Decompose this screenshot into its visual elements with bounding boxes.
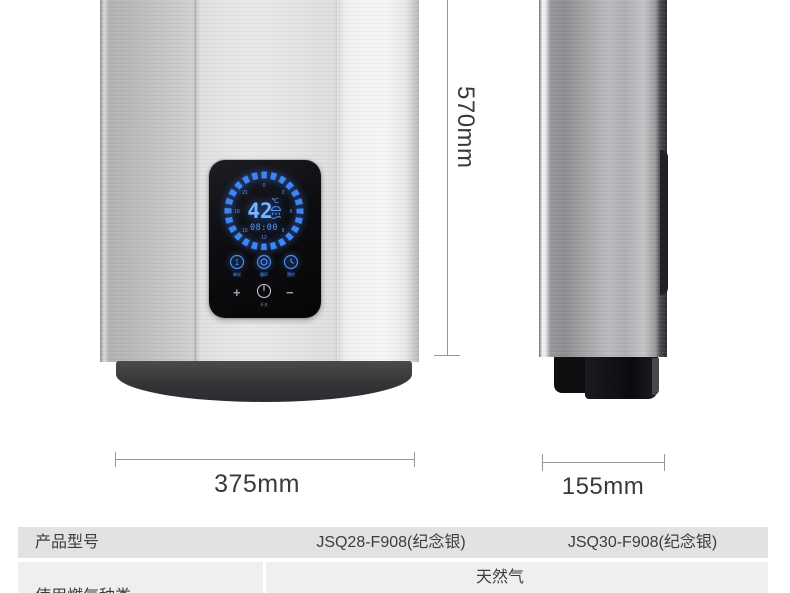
front-panel-seam-left bbox=[195, 0, 196, 362]
width-dimension-label: 375mm bbox=[177, 470, 337, 499]
height-dimension-line bbox=[447, 0, 448, 356]
power-icon bbox=[254, 281, 274, 301]
spec-column-divider bbox=[263, 562, 266, 593]
heater-control-panel: 0 3 6 9 12 15 18 21 42 ℃ 08:00 1 bbox=[209, 160, 321, 318]
spec-label-model: 产品型号 bbox=[35, 527, 99, 558]
heater-side-base bbox=[585, 357, 658, 399]
depth-dimension-line bbox=[542, 462, 665, 463]
svg-text:1: 1 bbox=[235, 258, 240, 267]
dial-num-21: 21 bbox=[242, 190, 248, 196]
single-use-button: 1 bbox=[229, 254, 245, 270]
heater-side-edge-bulge bbox=[660, 150, 668, 295]
spec-value-model-left: JSQ28-F908(纪念银) bbox=[265, 527, 517, 558]
dial-num-9: 9 bbox=[282, 228, 285, 234]
timer-label: 预约 bbox=[279, 272, 303, 278]
product-dimension-figure: 0 3 6 9 12 15 18 21 42 ℃ 08:00 1 bbox=[0, 0, 790, 593]
depth-dimension-label: 155mm bbox=[523, 473, 683, 501]
dial-num-6: 6 bbox=[290, 209, 293, 215]
temperature-readout: 42 bbox=[247, 199, 272, 223]
heater-side-base-trim bbox=[652, 358, 659, 395]
front-panel-seam-right bbox=[336, 0, 338, 362]
dial-num-18: 18 bbox=[234, 209, 240, 215]
cycle-label: 循环 bbox=[252, 272, 276, 278]
temp-down-button: − bbox=[286, 285, 294, 300]
width-dimension-tick-right bbox=[414, 452, 415, 467]
spec-label-gas-type: 使用燃气种类 bbox=[35, 581, 131, 593]
heater-side-base-left bbox=[554, 357, 586, 393]
spec-row-gas-type: 使用燃气种类 天然气 bbox=[18, 562, 768, 593]
single-use-icon: 1 bbox=[229, 254, 245, 270]
spec-row-model: 产品型号 JSQ28-F908(纪念银) JSQ30-F908(纪念银) bbox=[18, 527, 768, 558]
dial-num-0: 0 bbox=[263, 183, 266, 189]
width-dimension-tick-left bbox=[115, 452, 116, 467]
brushed-metal-texture-side bbox=[539, 0, 667, 357]
dial-num-3: 3 bbox=[282, 190, 285, 196]
dial-num-12: 12 bbox=[261, 235, 267, 241]
spec-value-gas-type: 天然气 bbox=[265, 562, 735, 593]
power-button-label: 开关 bbox=[252, 302, 276, 308]
width-dimension-line bbox=[115, 459, 415, 460]
height-dimension-label: 570mm bbox=[451, 86, 479, 169]
temperature-unit: ℃ bbox=[271, 198, 279, 205]
clock-readout: 08:00 bbox=[250, 223, 278, 233]
spec-value-model-right: JSQ30-F908(纪念银) bbox=[517, 527, 768, 558]
temp-up-button: + bbox=[233, 285, 241, 300]
temperature-dial: 0 3 6 9 12 15 18 21 42 ℃ 08:00 bbox=[209, 160, 321, 250]
heater-side-body bbox=[539, 0, 667, 357]
heater-front-base bbox=[116, 361, 412, 402]
single-use-label: 单次 bbox=[225, 272, 249, 278]
timer-button bbox=[283, 254, 299, 270]
cycle-icon bbox=[256, 254, 272, 270]
cycle-button bbox=[256, 254, 272, 270]
depth-dimension-tick-left bbox=[542, 454, 543, 471]
dial-num-15: 15 bbox=[242, 228, 248, 234]
height-dimension-tick bbox=[434, 355, 460, 356]
depth-dimension-tick-right bbox=[664, 454, 665, 471]
timer-clock-icon bbox=[283, 254, 299, 270]
